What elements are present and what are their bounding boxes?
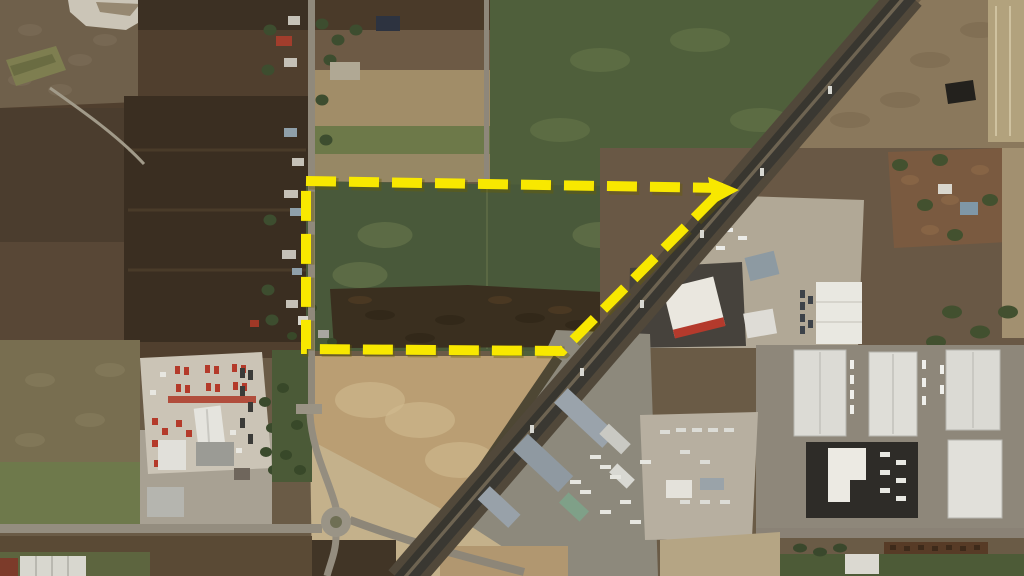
aerial-scene-canvas xyxy=(0,0,1024,576)
gravel-yard-trucks xyxy=(680,450,690,454)
gravel-yard-trucks xyxy=(720,500,730,504)
gravel-pad-east xyxy=(330,62,360,80)
red-trucks-row xyxy=(215,384,220,392)
dark-trucks xyxy=(240,368,245,378)
park-trailers xyxy=(610,475,621,479)
farmland-topleft-texture xyxy=(68,54,92,66)
green-strip-trees xyxy=(277,383,289,393)
farmstead-trees xyxy=(932,154,948,166)
parcel-field-wash xyxy=(358,222,413,248)
roadside-trees xyxy=(316,19,329,30)
farmstead-trees xyxy=(982,194,998,206)
roadside-houses-white xyxy=(286,300,298,308)
trees-lot-edge xyxy=(260,447,272,457)
park-trailers xyxy=(630,520,641,524)
dark-trucks xyxy=(248,434,253,444)
red-trucks-row xyxy=(184,367,189,375)
white-building-mid xyxy=(816,282,862,344)
farmland-west-lower xyxy=(0,242,124,356)
trees-bottomright xyxy=(833,544,847,553)
tan-field-right xyxy=(988,0,1024,142)
farmstead-texture xyxy=(971,165,989,175)
red-trucks-cluster xyxy=(176,420,182,427)
white-trucks xyxy=(230,430,236,435)
lot-trailers xyxy=(896,496,906,501)
red-trucks-row xyxy=(232,364,237,372)
park-trailers xyxy=(600,510,611,514)
red-roof-house xyxy=(250,320,259,327)
gravel-yard-trucks xyxy=(700,460,710,464)
yard-gray-building xyxy=(700,478,724,490)
farm-parcel-green xyxy=(314,126,490,154)
red-trucks-cluster xyxy=(152,418,158,425)
roadside-houses-white xyxy=(288,16,300,25)
small-white-building xyxy=(743,309,777,339)
roadside-trees xyxy=(266,315,279,326)
parked-cars xyxy=(800,290,805,298)
roadside-trees xyxy=(262,285,275,296)
rural-road-field xyxy=(484,0,489,184)
olive-field-texture xyxy=(95,363,125,377)
dock-trucks xyxy=(922,360,926,369)
driveway-pad xyxy=(296,404,322,414)
trees-right-mid xyxy=(970,326,990,339)
green-strip-trees xyxy=(291,420,303,430)
farmstead-trees xyxy=(947,229,963,241)
scrub-patch-texture xyxy=(515,313,545,323)
yard-white-building xyxy=(666,480,692,498)
warehouse-4 xyxy=(948,440,1002,518)
roadside-houses-gray xyxy=(292,268,302,275)
gravel-yard-trucks xyxy=(724,428,734,432)
roadside-trees xyxy=(264,25,277,36)
park-trailers xyxy=(620,500,631,504)
red-trucks-row xyxy=(185,385,190,393)
gravel-yard-trucks xyxy=(676,428,686,432)
orchard-trees xyxy=(960,546,966,551)
gray-building-bl2 xyxy=(147,487,184,517)
roadside-houses-white xyxy=(282,250,296,259)
parcel-field-wash xyxy=(333,262,388,288)
lot-trailers xyxy=(880,488,890,493)
red-trucks-row xyxy=(206,383,211,391)
farmstead-texture xyxy=(921,225,939,235)
pad-vehicles xyxy=(738,236,747,240)
lot-trailers xyxy=(880,452,890,457)
red-trucks-cluster xyxy=(162,428,168,435)
farmstead-white-roof xyxy=(938,184,952,194)
white-trucks xyxy=(160,372,166,377)
green-field-bottomright xyxy=(780,554,1024,576)
dark-trucks xyxy=(248,370,253,380)
parked-cars xyxy=(800,326,805,334)
green-strip-trees xyxy=(280,450,292,460)
dock-trucks xyxy=(922,396,926,405)
roadside-house-red xyxy=(276,36,292,46)
farmstead-texture xyxy=(941,195,959,205)
red-trucks-row xyxy=(176,384,181,392)
roundabout-island xyxy=(330,516,342,528)
white-trucks xyxy=(150,390,156,395)
red-trucks-row xyxy=(214,366,219,374)
orchard-trees xyxy=(890,545,896,550)
pad-vehicles xyxy=(716,246,725,250)
scrub-patch-rust xyxy=(548,306,572,314)
red-trucks-strip xyxy=(168,396,256,403)
highway-vehicles xyxy=(828,86,832,94)
scrub-patch-rust xyxy=(348,296,372,304)
dock-trucks xyxy=(850,375,854,384)
gravel-yard-trucks xyxy=(708,428,718,432)
dock-trucks xyxy=(940,385,944,394)
white-building-bl xyxy=(158,440,186,470)
scrub-patch-texture xyxy=(435,315,465,325)
highway-vehicles xyxy=(700,230,704,238)
roadside-houses-gray xyxy=(284,128,297,137)
green-field-streaks xyxy=(670,28,730,52)
roadside-houses-white xyxy=(284,190,298,198)
tan-field-bottom xyxy=(440,546,568,576)
green-strip-mid xyxy=(272,350,312,482)
olive-field-texture xyxy=(15,433,45,447)
dock-trucks xyxy=(922,378,926,387)
scrubland-texture xyxy=(830,112,870,128)
highway-vehicles xyxy=(580,368,584,376)
gravel-yard-trucks xyxy=(660,430,670,434)
parked-cars xyxy=(800,302,805,310)
roadside-houses-gray xyxy=(290,208,302,216)
farmstead-trees xyxy=(917,199,933,211)
parcel-farmstead-trees xyxy=(287,332,297,340)
olive-field-texture xyxy=(25,373,55,387)
green-strip-trees xyxy=(294,465,306,475)
gray-building-bl xyxy=(196,442,234,466)
roadside-houses-white xyxy=(284,58,297,67)
red-roof-corner xyxy=(0,558,18,576)
white-trucks xyxy=(236,448,242,453)
dark-building-east xyxy=(376,16,400,31)
park-trailers xyxy=(600,465,611,469)
house-south-of-lot xyxy=(234,468,250,480)
gravel-yard-trucks xyxy=(680,500,690,504)
green-field-bottomleft xyxy=(0,462,140,530)
dock-trucks xyxy=(850,360,854,369)
dark-field-bottom xyxy=(312,540,396,576)
parked-cars xyxy=(808,320,813,328)
dark-trucks xyxy=(248,402,253,412)
trees-lot-edge xyxy=(259,397,271,407)
farm-parcel-dark xyxy=(314,0,490,30)
farmland-topleft-texture xyxy=(18,24,42,36)
dock-trucks xyxy=(850,405,854,414)
scrub-patch-texture xyxy=(405,333,435,343)
red-trucks-row xyxy=(233,382,238,390)
scrub-patch-rust xyxy=(488,296,512,304)
scrubland-texture xyxy=(880,92,920,108)
plowed-field-large xyxy=(124,96,312,342)
roadside-trees xyxy=(332,35,345,46)
lot-trailers xyxy=(896,460,906,465)
parked-cars xyxy=(808,296,813,304)
trees-right-mid xyxy=(998,306,1018,319)
roadside-trees xyxy=(316,95,329,106)
orchard-trees xyxy=(974,545,980,550)
farmland-topleft-texture xyxy=(93,34,117,46)
scrubland-texture xyxy=(910,52,950,68)
gravel-yard-trucks xyxy=(700,500,710,504)
trees-bottomright xyxy=(793,544,807,553)
satellite-map-image xyxy=(0,0,1024,576)
olive-field-texture xyxy=(75,413,105,427)
dock-trucks xyxy=(850,390,854,399)
road-bottom-right xyxy=(756,528,1024,538)
highway-vehicles xyxy=(760,168,764,176)
dark-trucks xyxy=(240,386,245,396)
green-field-streaks xyxy=(530,118,590,142)
roadside-trees xyxy=(264,215,277,226)
park-trailers xyxy=(640,460,651,464)
orchard-trees xyxy=(946,545,952,550)
orchard-trees xyxy=(918,545,924,550)
dark-roof-building xyxy=(945,80,976,104)
farmstead-trees xyxy=(892,159,908,171)
scrub-patch-texture xyxy=(365,310,395,320)
dark-trucks xyxy=(240,418,245,428)
roadside-trees xyxy=(350,25,363,36)
park-trailers xyxy=(580,490,591,494)
orchard-trees xyxy=(904,546,910,551)
roadside-houses-white xyxy=(292,158,304,166)
green-field-streaks xyxy=(570,48,630,72)
lot-trailers xyxy=(880,470,890,475)
roadside-trees xyxy=(262,65,275,76)
white-building-bottomright xyxy=(845,554,879,574)
red-trucks-row xyxy=(205,365,210,373)
farmstead-blue-roof xyxy=(960,202,978,215)
roadside-trees xyxy=(320,135,333,146)
trees-bottomright xyxy=(813,548,827,557)
highway-vehicles xyxy=(640,300,644,308)
park-trailers xyxy=(570,480,581,484)
dock-trucks xyxy=(940,365,944,374)
red-trucks-cluster xyxy=(186,430,192,437)
orchard-trees xyxy=(932,546,938,551)
trees-right-mid xyxy=(942,306,962,319)
parcel-farmstead-shed xyxy=(318,330,329,338)
farmstead-texture xyxy=(901,175,919,185)
lot-trailers xyxy=(896,478,906,483)
highway-vehicles xyxy=(530,425,534,433)
red-trucks-cluster xyxy=(152,440,158,447)
red-trucks-row xyxy=(175,366,180,374)
parked-cars xyxy=(800,314,805,322)
gravel-yard-trucks xyxy=(692,428,702,432)
dirt-field-light xyxy=(335,382,405,418)
park-trailers xyxy=(590,455,601,459)
road-west xyxy=(0,524,322,533)
plowed-field-top xyxy=(138,0,314,30)
